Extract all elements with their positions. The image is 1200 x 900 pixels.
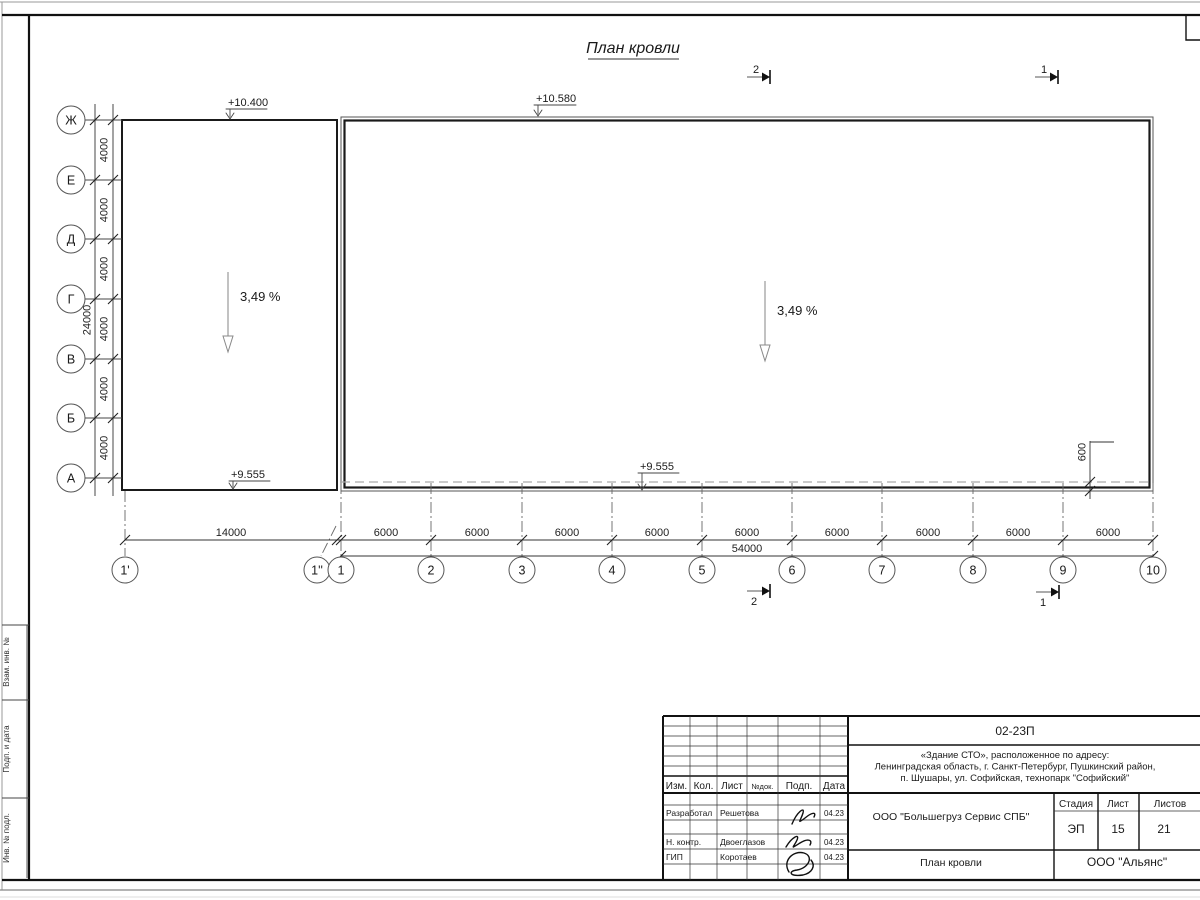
org-name: ООО "Альянс" <box>1087 855 1167 869</box>
role-label: ГИП <box>666 852 683 862</box>
object-address-line2: Ленинградская область, г. Санкт-Петербур… <box>875 762 1156 773</box>
axis-row-label: Д <box>67 233 76 247</box>
axis-col-label: 8 <box>970 564 977 578</box>
sheet-number: 15 <box>1111 822 1125 836</box>
section-mark-label: 1 <box>1040 597 1046 609</box>
col-bay-dim: 6000 <box>1006 527 1030 539</box>
elevation-label: +10.580 <box>536 93 576 105</box>
object-address-line3: п. Шушары, ул. Софийская, технопарк "Соф… <box>901 773 1130 784</box>
row-axes: Ж Е Д Г В Б А 4000 4000 4000 4000 4000 4… <box>57 104 122 496</box>
axis-col-label: 1 <box>338 564 345 578</box>
buildings <box>122 117 1153 491</box>
company-name: ООО "Большегруз Сервис СПБ" <box>873 811 1030 823</box>
section-mark-arrow <box>1050 73 1058 82</box>
col-dim-ticks <box>120 535 1158 561</box>
signature <box>786 836 811 847</box>
elevation-label: +9.555 <box>640 461 674 473</box>
axis-row-label: Б <box>67 412 75 426</box>
left-building-roof <box>122 120 337 490</box>
page-title: План кровли <box>586 40 680 57</box>
corner-stamp-box <box>1186 16 1200 40</box>
col-header-izm: Изм. <box>666 781 687 792</box>
sheets-total: 21 <box>1157 822 1171 836</box>
sheets-header: Листов <box>1154 799 1187 810</box>
parapet-dim-label: 600 <box>1077 443 1089 461</box>
col-header-data: Дата <box>823 781 846 792</box>
strip-label-vzam: Взам. инв. № <box>2 637 11 687</box>
section-mark-label: 2 <box>753 64 759 76</box>
col-bay-dim: 6000 <box>1096 527 1120 539</box>
row-bay-dim: 4000 <box>99 257 111 281</box>
row-bay-dim: 4000 <box>99 377 111 401</box>
sign-date: 04.23 <box>824 809 845 818</box>
axis-row-label: В <box>67 353 75 367</box>
axis-col-label: 6 <box>789 564 796 578</box>
sign-date: 04.23 <box>824 853 845 862</box>
axis-col-label: 9 <box>1060 564 1067 578</box>
section-mark-arrow <box>762 587 770 596</box>
sheet-header: Лист <box>1107 799 1129 810</box>
role-label: Н. контр. <box>666 837 701 847</box>
axis-row-label: Ж <box>65 114 77 128</box>
object-address-line1: «Здание СТО», расположенное по адресу: <box>921 750 1110 761</box>
axis-col-label: 1'' <box>311 564 323 578</box>
col-bay-dim: 6000 <box>735 527 759 539</box>
col-axes: 14000 6000 6000 6000 6000 6000 6000 6000… <box>112 483 1166 583</box>
sign-date: 04.23 <box>824 838 845 847</box>
col-bay-dim: 6000 <box>555 527 579 539</box>
axis-col-label: 5 <box>699 564 706 578</box>
axis-row-label: Г <box>68 293 75 307</box>
slope-label: 3,49 % <box>777 303 818 318</box>
row-total-dim: 24000 <box>82 305 94 336</box>
axis-col-label: 4 <box>609 564 616 578</box>
stage-value: ЭП <box>1067 822 1084 836</box>
signature <box>792 810 815 824</box>
section-mark-label: 1 <box>1041 64 1047 76</box>
axis-row-label: А <box>67 472 76 486</box>
elevation-label: +10.400 <box>228 97 268 109</box>
person-name: Решетова <box>720 808 759 818</box>
row-bay-dim: 4000 <box>99 138 111 162</box>
row-axis-lines <box>85 120 122 478</box>
section-mark-arrow <box>762 73 770 82</box>
person-name: Коротаев <box>720 852 757 862</box>
col-total-dim: 54000 <box>732 543 763 555</box>
strip-label-podp: Подп. и дата <box>2 725 11 773</box>
axis-col-label: 7 <box>879 564 886 578</box>
doc-number: 02-23П <box>995 724 1034 738</box>
axis-row-label: Е <box>67 174 75 188</box>
col-bay-dim: 6000 <box>916 527 940 539</box>
roof-plan-canvas: Взам. инв. № Подп. и дата Инв. № подл. П… <box>0 0 1200 900</box>
col-bay-dim: 6000 <box>825 527 849 539</box>
role-label: Разработал <box>666 808 712 818</box>
col-header-list: Лист <box>721 781 743 792</box>
elevation-label: +9.555 <box>231 469 265 481</box>
axis-col-label: 3 <box>519 564 526 578</box>
strip-label-inv: Инв. № подл. <box>2 813 11 863</box>
section-mark-label: 2 <box>751 596 757 608</box>
col-header-ndok: №док. <box>752 782 774 791</box>
side-strip: Взам. инв. № Подп. и дата Инв. № подл. <box>2 625 29 878</box>
axis-col-label: 10 <box>1146 564 1160 578</box>
col-bay-dim: 6000 <box>465 527 489 539</box>
axis-col-label: 2 <box>428 564 435 578</box>
stage-header: Стадия <box>1059 799 1093 810</box>
col-first-dim: 14000 <box>216 527 247 539</box>
col-bay-dim: 6000 <box>374 527 398 539</box>
col-header-kol: Кол. <box>694 781 714 792</box>
right-building-roof-outer <box>341 117 1153 491</box>
drawing-name: План кровли <box>920 857 982 869</box>
axis-col-label: 1' <box>120 564 129 578</box>
slope-label: 3,49 % <box>240 289 281 304</box>
person-name: Двоеглазов <box>720 837 766 847</box>
col-axis-lines <box>125 483 1153 556</box>
row-bay-dim: 4000 <box>99 436 111 460</box>
row-bay-dim: 4000 <box>99 317 111 341</box>
plan-title: План кровли <box>586 40 680 59</box>
col-bay-dim: 6000 <box>645 527 669 539</box>
title-block: 02-23П «Здание СТО», расположенное по ад… <box>663 716 1200 880</box>
section-mark-arrow <box>1051 588 1059 597</box>
drawing-sheet: Взам. инв. № Подп. и дата Инв. № подл. П… <box>0 0 1200 900</box>
col-header-podp: Подп. <box>786 781 813 792</box>
row-bay-dim: 4000 <box>99 198 111 222</box>
